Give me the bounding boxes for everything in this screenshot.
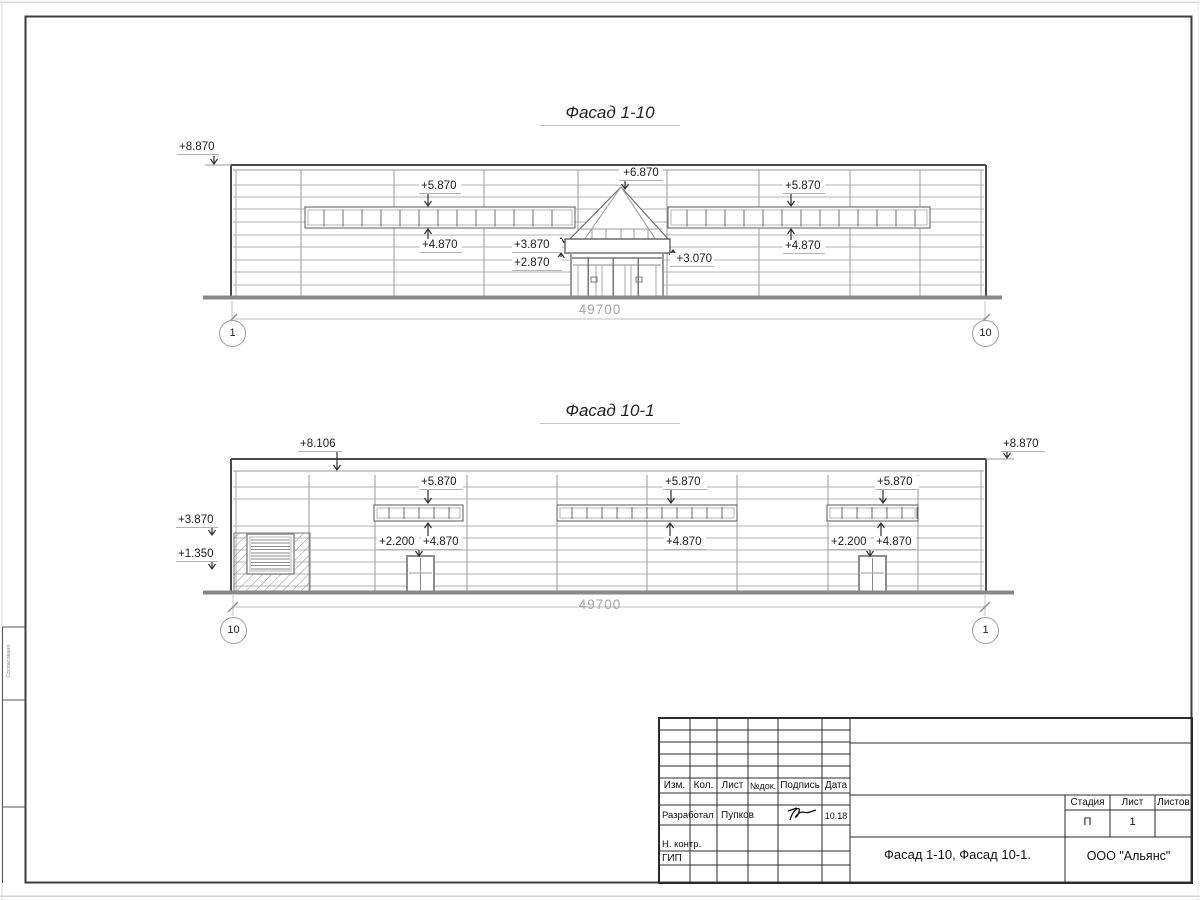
elevation-mark: +5.870 <box>419 476 463 490</box>
facade1-dimension: 49700 <box>560 302 640 317</box>
elevation-mark: +8.870 <box>177 141 219 155</box>
tb-role-gip: ГИП <box>662 853 682 864</box>
elevation-mark: +4.870 <box>420 239 462 253</box>
signature-glyph <box>788 808 816 820</box>
drawing-sheet: Фасад 1-10 Фасад 10-1 +8.870 +5.870 +6.8… <box>0 0 1200 900</box>
facade2-door-left <box>407 556 434 592</box>
tb-header-list: Лист <box>717 780 748 791</box>
elevation-mark: +4.870 <box>664 536 706 550</box>
facade1-window-band-right <box>668 207 930 228</box>
elevation-mark: +5.870 <box>663 476 707 490</box>
tb-role-razrabotal: Разработал <box>662 810 714 821</box>
tb-header-kol: Кол. <box>690 780 717 791</box>
elevation-mark: +2.870 <box>512 257 562 271</box>
elevation-mark: +3.070 <box>670 253 714 267</box>
elevation-mark: +3.870 <box>176 514 218 528</box>
facade2-dimension: 49700 <box>560 597 640 612</box>
elevation-mark: +5.870 <box>875 476 919 490</box>
axis-bubble: 10 <box>972 320 999 347</box>
elevation-mark: +2.200 <box>829 536 870 550</box>
facade1-title: Фасад 1-10 <box>540 103 680 126</box>
elevation-mark: +2.200 <box>377 536 419 550</box>
facade2-door-right <box>859 556 886 592</box>
facade2-title: Фасад 10-1 <box>540 401 680 424</box>
tb-doc-title: Фасад 1-10, Фасад 10-1. <box>850 849 1065 860</box>
tb-list-label: Лист <box>1110 797 1155 808</box>
tb-stadia-value: П <box>1065 817 1110 828</box>
facade1-window-band-left <box>305 207 575 228</box>
elevation-mark: +4.870 <box>421 536 463 550</box>
elevation-mark: +4.870 <box>783 240 825 254</box>
tb-header-izm: Изм. <box>659 780 690 791</box>
tb-developer-name: Пупков <box>721 810 754 821</box>
elevation-mark: +5.870 <box>419 180 461 194</box>
elevation-mark: +4.870 <box>874 536 916 550</box>
tb-stadia-label: Стадия <box>1065 797 1110 808</box>
tb-date: 10.18 <box>822 811 850 822</box>
tb-listov-label: Листов <box>1155 797 1192 808</box>
tb-list-value: 1 <box>1110 817 1155 828</box>
elevation-mark: +8.106 <box>298 438 342 452</box>
margin-note: Согласовано <box>6 626 12 696</box>
elevation-mark: +6.870 <box>619 167 663 181</box>
tb-header-data: Дата <box>822 780 850 791</box>
elevation-mark: +1.350 <box>176 548 218 562</box>
axis-bubble: 10 <box>220 617 247 644</box>
tb-org-name: ООО "Альянс" <box>1065 851 1192 862</box>
elevation-mark: +5.870 <box>783 180 825 194</box>
elevation-mark: +3.870 <box>512 239 562 253</box>
tb-header-podpis: Подпись <box>778 780 822 791</box>
entrance-storefront <box>571 253 663 297</box>
axis-bubble: 1 <box>219 320 246 347</box>
tb-header-ndok: №док. <box>748 781 778 792</box>
axis-bubble: 1 <box>972 617 999 644</box>
tb-role-nkontr: Н. контр. <box>662 839 701 850</box>
facade2-window-bands <box>374 505 918 521</box>
elevation-mark: +8.870 <box>1001 438 1045 452</box>
